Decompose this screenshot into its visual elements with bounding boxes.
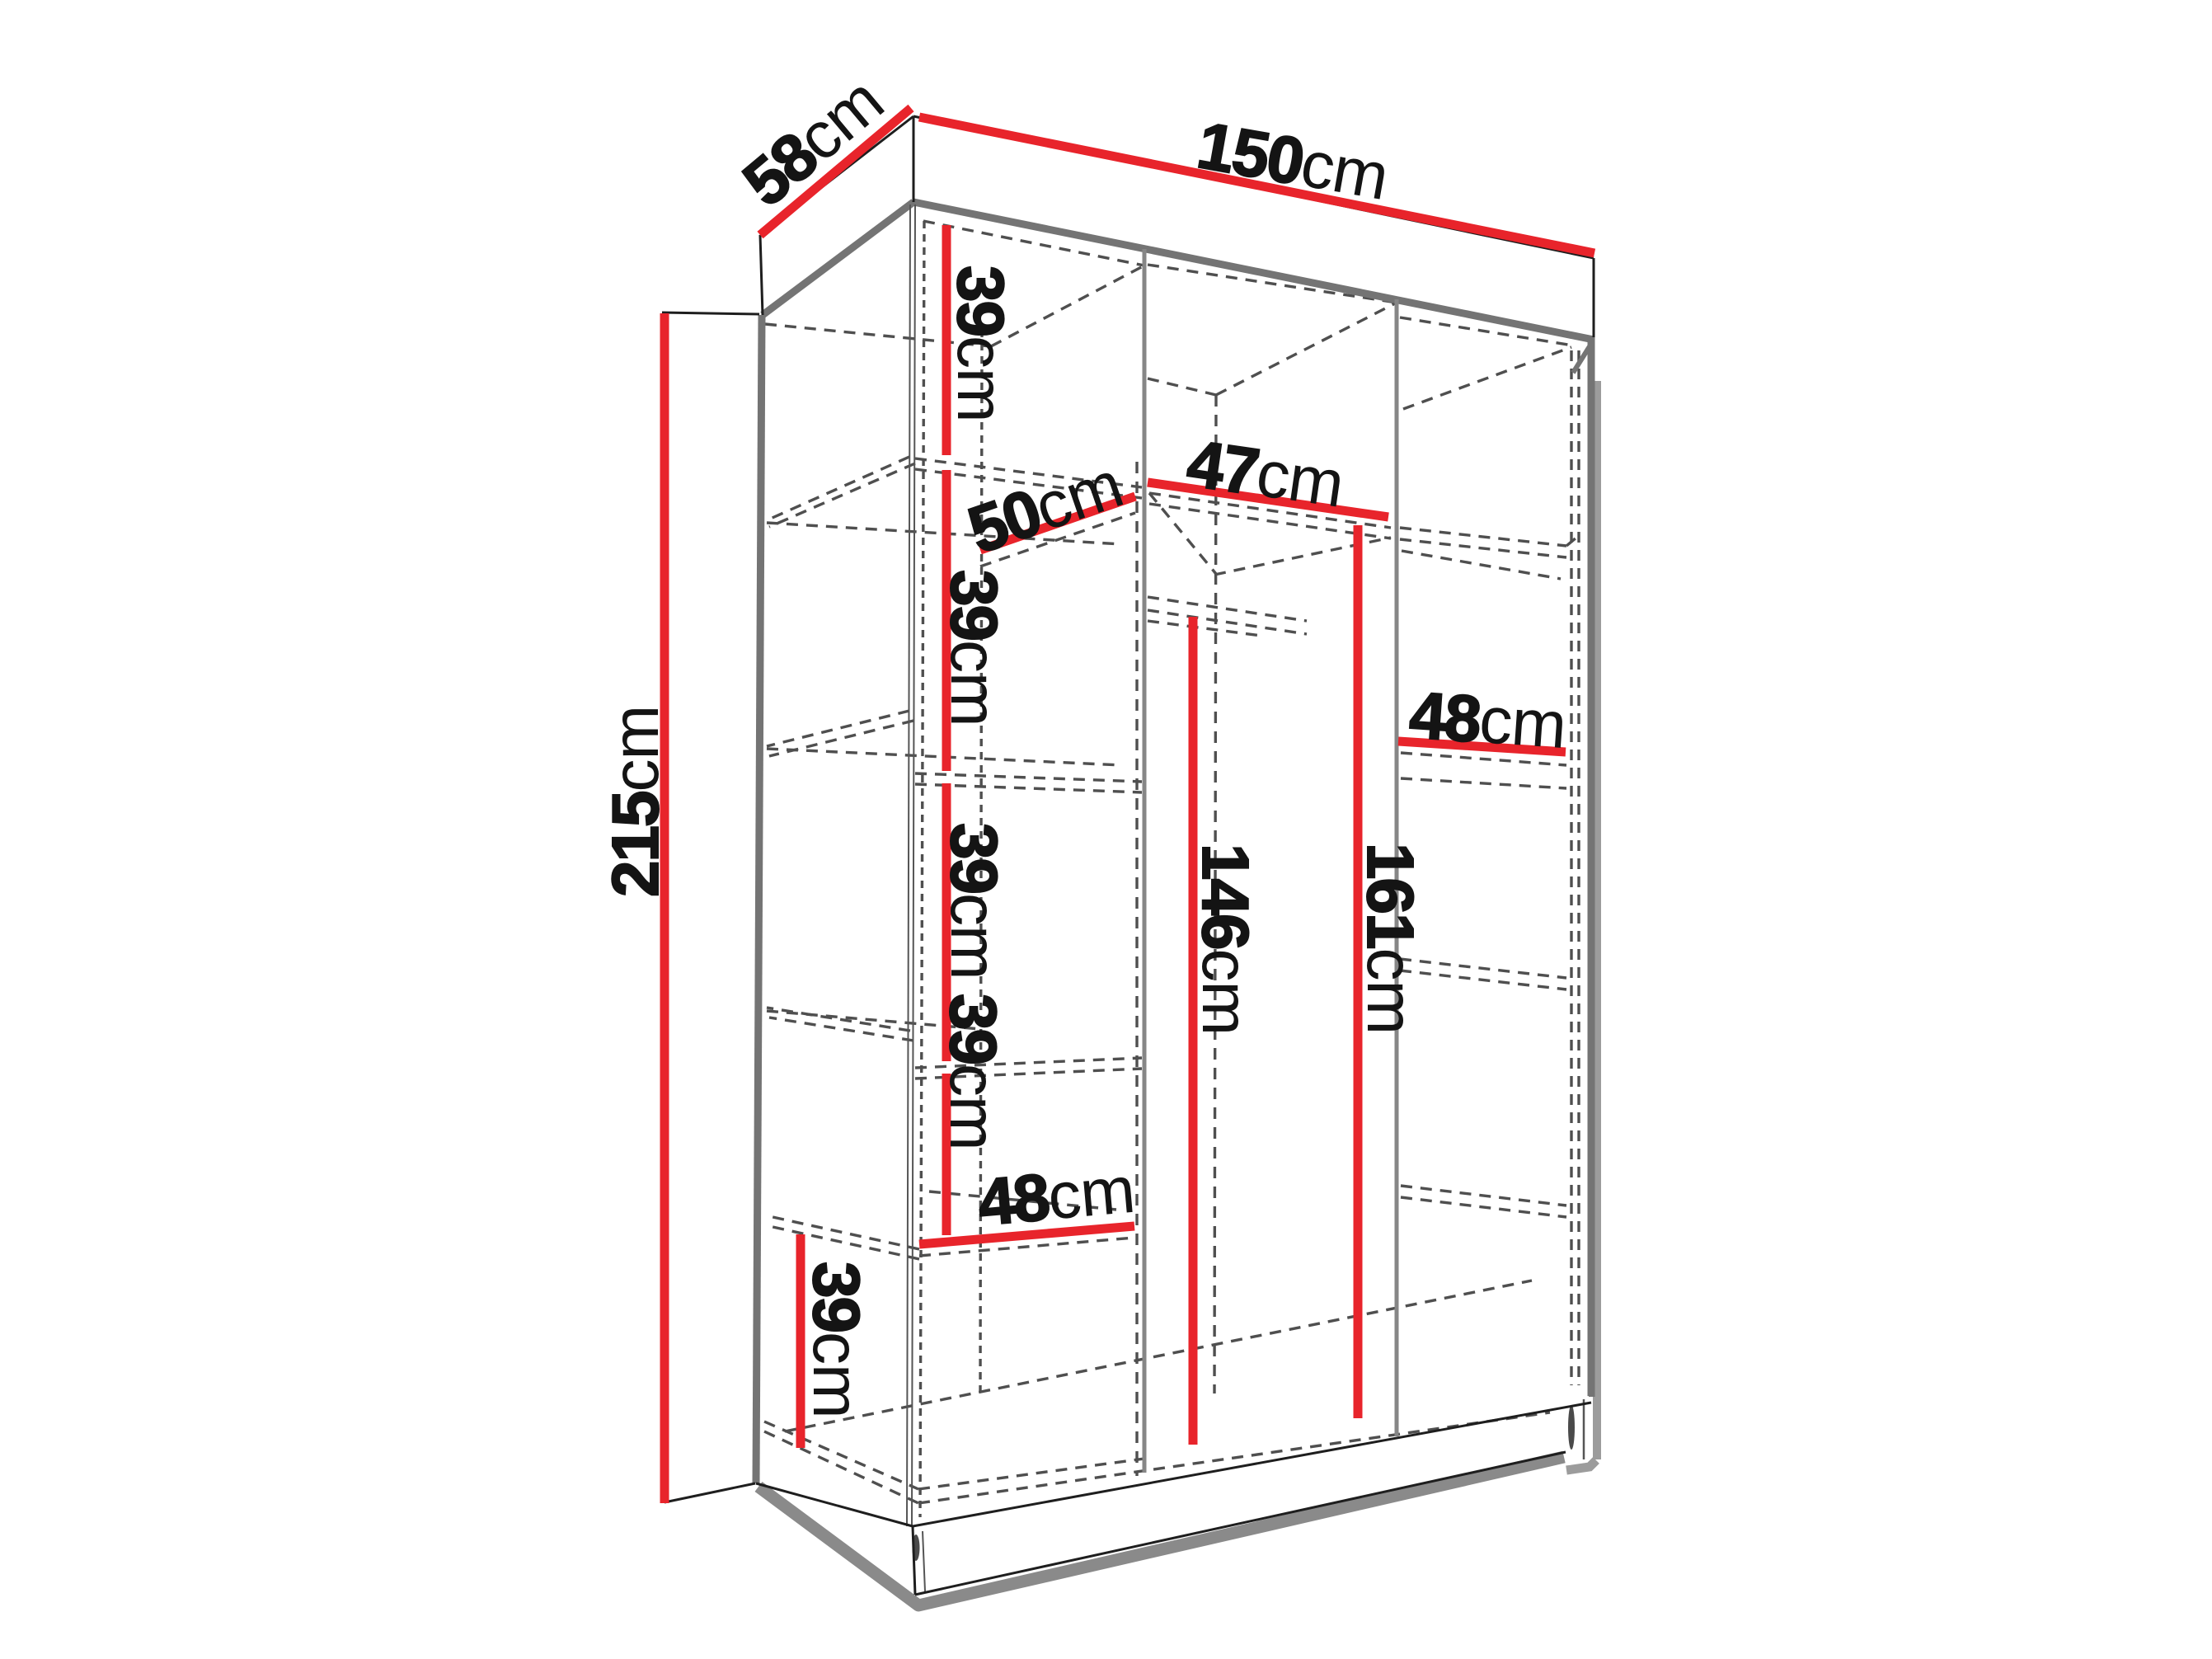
svg-text:48cm: 48cm (975, 1153, 1138, 1239)
svg-text:146cm: 146cm (1189, 844, 1262, 1035)
svg-text:39cm: 39cm (937, 994, 1010, 1150)
svg-text:161cm: 161cm (1354, 843, 1427, 1034)
svg-text:39cm: 39cm (937, 570, 1011, 726)
svg-text:39cm: 39cm (800, 1262, 873, 1418)
svg-text:39cm: 39cm (937, 823, 1011, 980)
svg-text:48cm: 48cm (1407, 678, 1568, 762)
svg-text:215cm: 215cm (599, 706, 672, 897)
svg-text:39cm: 39cm (944, 266, 1017, 422)
